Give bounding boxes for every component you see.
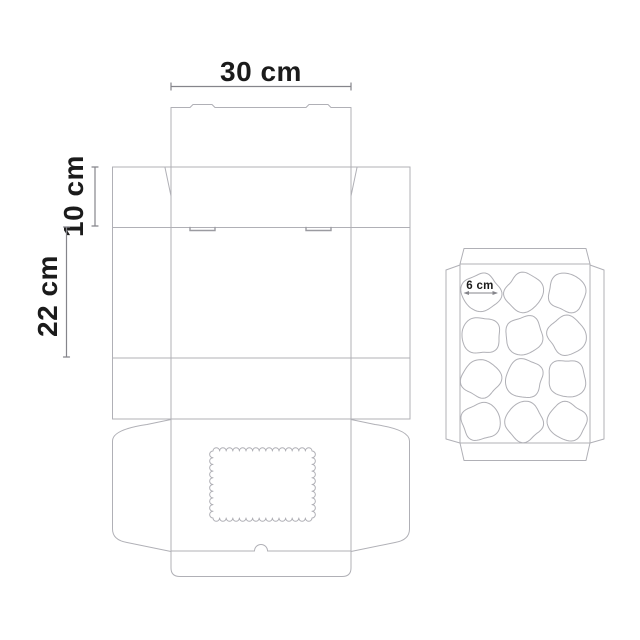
cupcake-hole — [548, 273, 586, 313]
dimension-width: 30 cm — [171, 56, 351, 90]
lid-wing-left — [113, 420, 172, 552]
cupcake-hole — [506, 359, 544, 398]
box-relief-cut-right — [351, 168, 357, 197]
cupcake-hole — [460, 360, 502, 399]
insert-tray: 6 cm — [446, 249, 604, 461]
dimension-lid-depth-line — [92, 167, 98, 226]
box-relief-cut-left — [165, 168, 171, 197]
cupcake-hole — [547, 401, 587, 441]
cupcake-hole — [547, 315, 587, 356]
cupcake-hole — [504, 272, 544, 313]
dimension-lid-depth-label: 10 cm — [58, 155, 89, 237]
dimension-body-height-label: 22 cm — [32, 255, 63, 337]
lid-bottom-edge — [171, 545, 351, 552]
dimension-lid-depth: 10 cm — [58, 155, 98, 237]
dimension-hole: 6 cm — [464, 280, 499, 295]
dimension-hole-label: 6 cm — [466, 280, 493, 292]
dimension-body-height: 22 cm — [32, 227, 70, 357]
box-bottom-flap — [171, 551, 351, 577]
tray-flap-left — [446, 265, 460, 443]
dieline-page: 30 cm 10 cm 22 cm 6 cm — [0, 0, 640, 640]
cupcake-hole — [462, 318, 500, 353]
tray-flap-top — [460, 249, 590, 265]
cupcake-hole — [461, 402, 500, 440]
cupcake-hole — [505, 401, 544, 443]
dimensions: 30 cm 10 cm 22 cm — [32, 56, 351, 357]
cupcake-hole — [506, 316, 543, 355]
cupcake-holes — [460, 272, 587, 443]
dimension-body-height-line — [64, 227, 70, 357]
dimension-width-label: 30 cm — [220, 56, 302, 87]
tray-flap-bottom — [460, 443, 590, 461]
box-dieline — [113, 105, 411, 577]
box-top-flap — [171, 105, 351, 168]
tray-flap-right — [590, 265, 604, 443]
lid-wing-right — [351, 420, 410, 552]
cupcake-hole — [549, 361, 586, 397]
scalloped-window — [210, 448, 316, 522]
dieline-drawing: 30 cm 10 cm 22 cm 6 cm — [0, 0, 640, 640]
